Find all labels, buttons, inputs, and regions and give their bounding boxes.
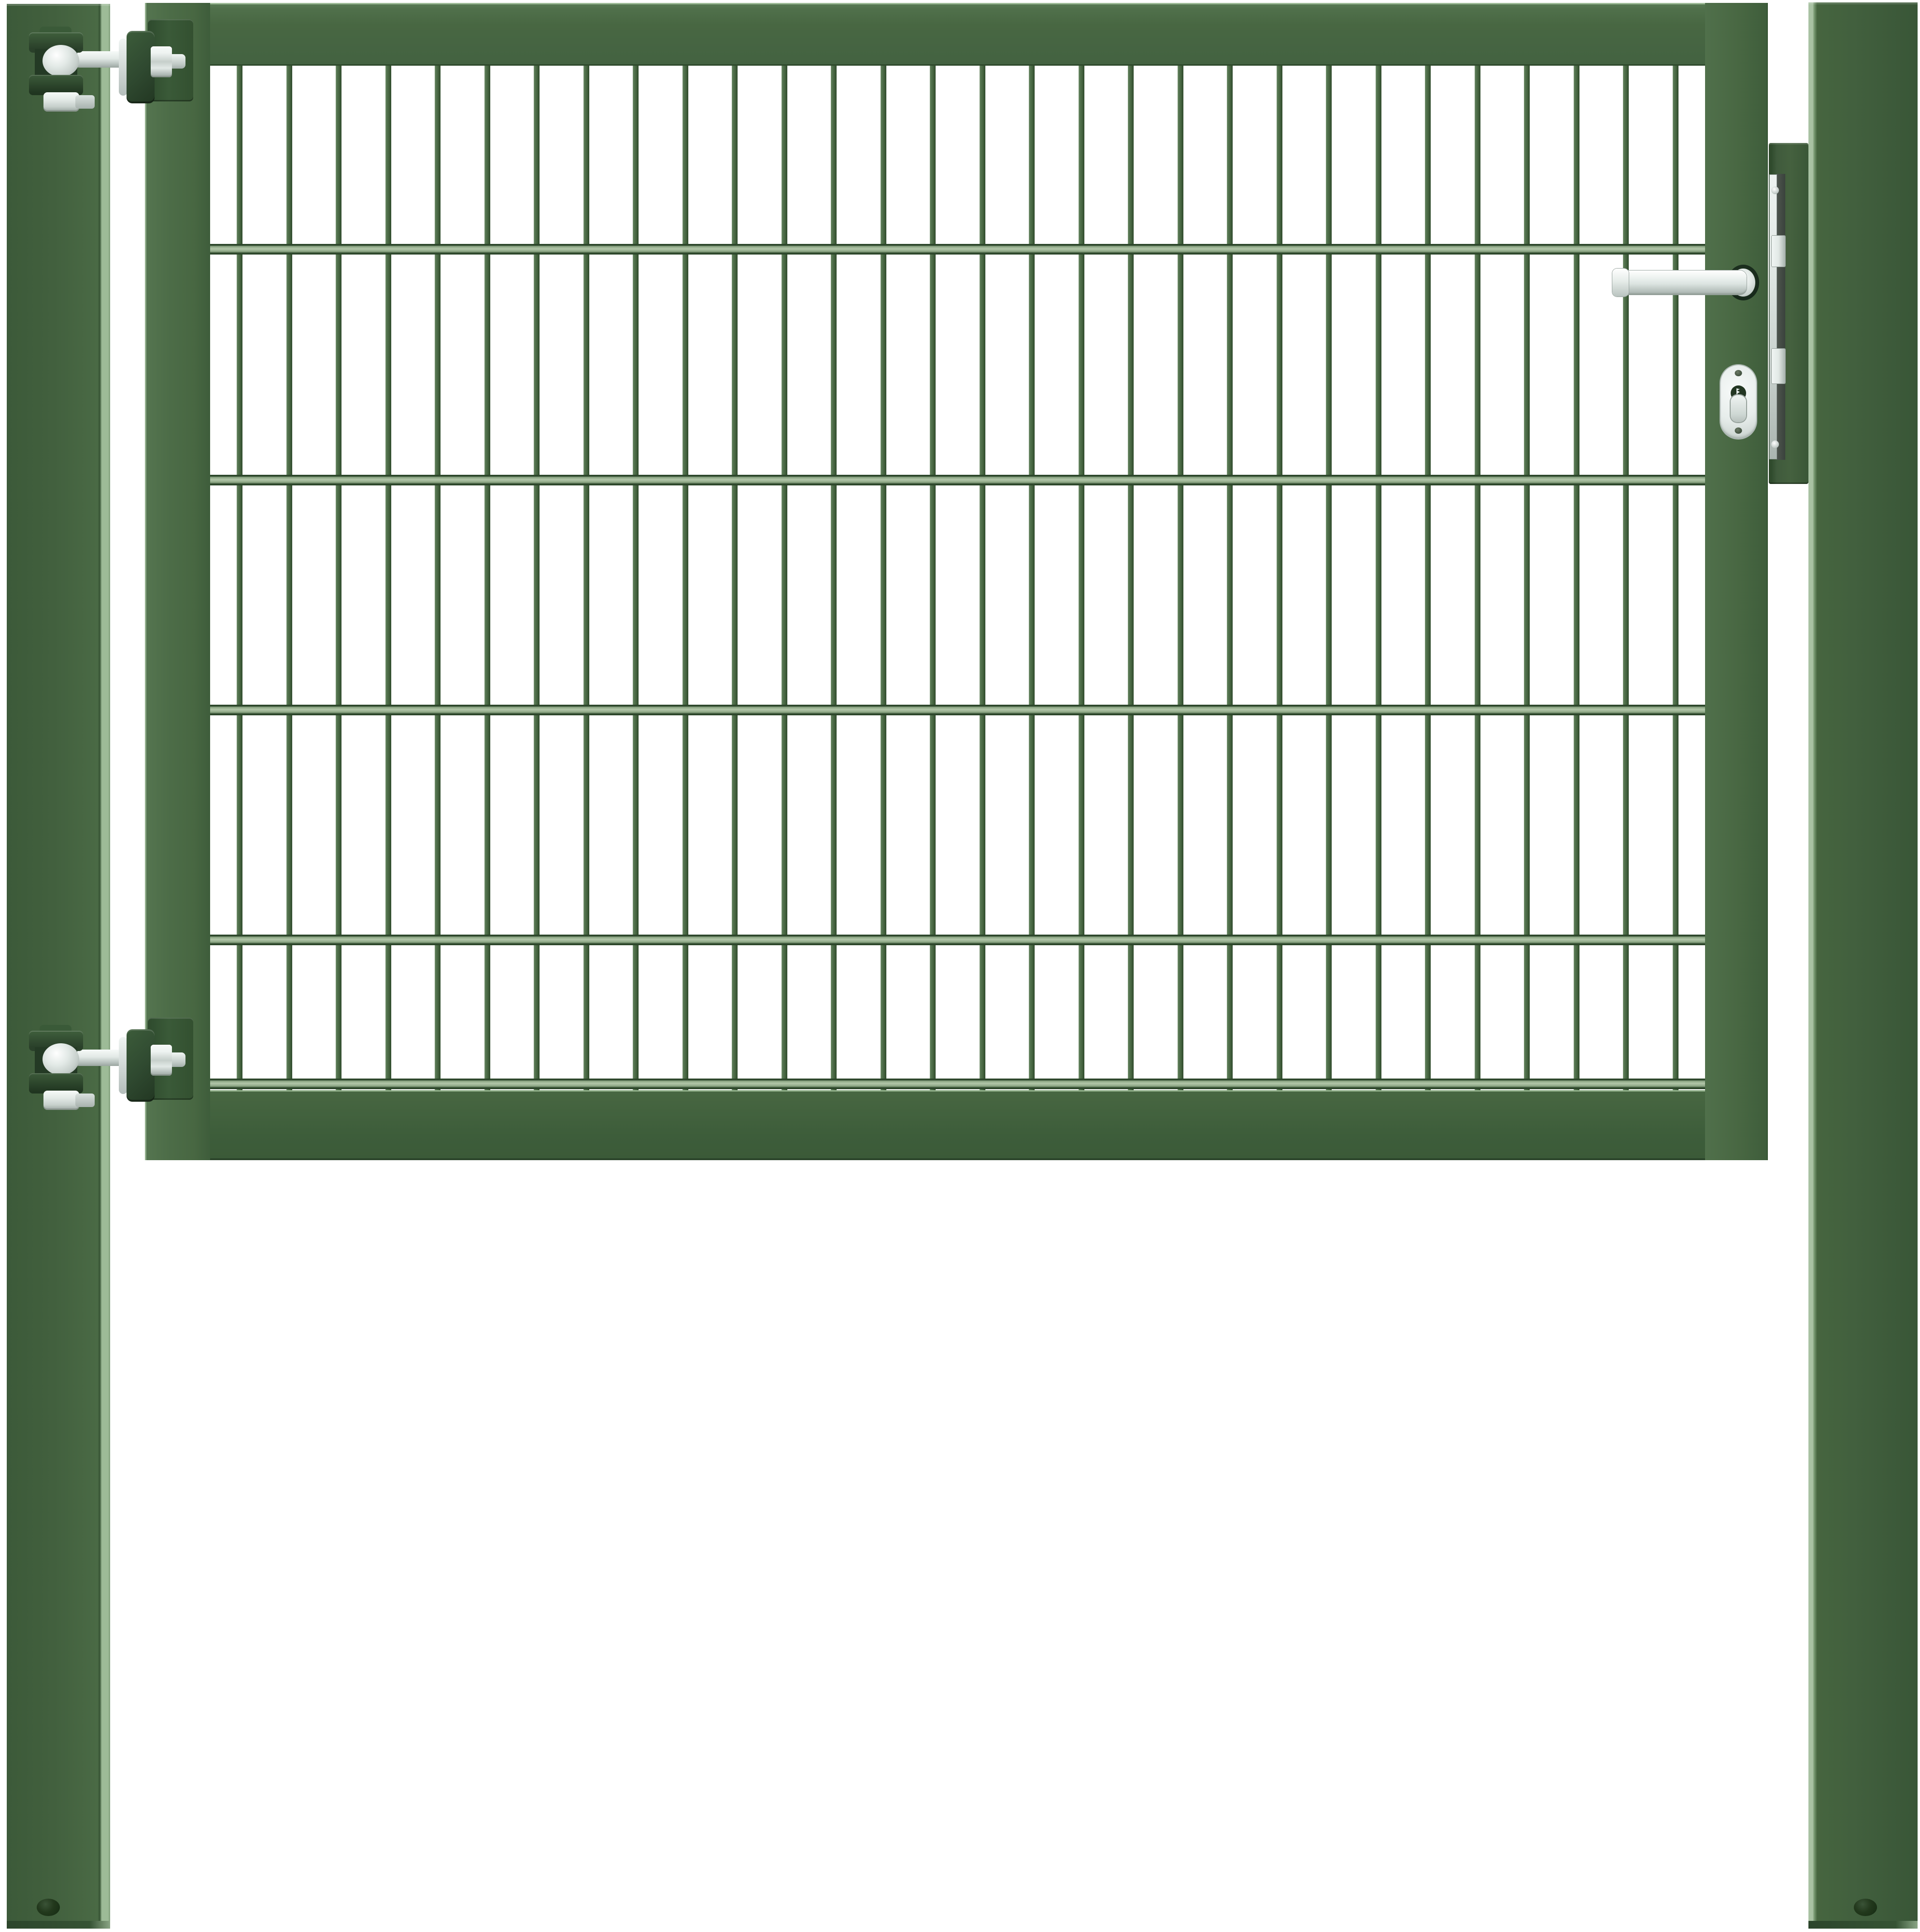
gate-stile-right	[1705, 3, 1768, 1160]
lever-handle	[1613, 270, 1747, 295]
gate-frame	[145, 3, 1768, 1160]
strike-screw	[1771, 440, 1779, 448]
hinge-ball-joint	[43, 45, 79, 77]
horizontal-double-wire	[208, 705, 1707, 715]
hinge-lower-washer	[75, 95, 95, 109]
right-post	[1808, 2, 1918, 1929]
lock-escutcheon	[1721, 365, 1756, 439]
hinge-ball-joint	[43, 1043, 79, 1075]
escutcheon-screw-top	[1735, 370, 1742, 376]
drain-hole	[37, 1899, 60, 1916]
lock-channel	[1777, 174, 1785, 460]
product-image	[0, 0, 1920, 1932]
horizontal-double-wire	[208, 1079, 1707, 1089]
hinge-lower-washer	[75, 1094, 95, 1107]
hinge-bolt-end	[170, 1052, 185, 1067]
gate-rail-top	[145, 3, 1768, 66]
hinge-lower-nut	[43, 1091, 79, 1110]
strike-plate	[1770, 175, 1777, 459]
hinge-lower-nut	[43, 92, 79, 112]
left-post	[7, 4, 110, 1929]
horizontal-double-wire	[208, 244, 1707, 255]
cylinder-body	[1731, 395, 1746, 422]
gate-rail-bottom	[145, 1090, 1768, 1160]
horizontal-double-wire	[208, 935, 1707, 945]
hinge-hex-nut	[151, 46, 172, 77]
escutcheon-screw-bottom	[1735, 427, 1742, 434]
hinge-hex-nut	[151, 1045, 172, 1076]
dead-bolt	[1772, 349, 1785, 384]
horizontal-double-wire	[208, 475, 1707, 485]
latch-bolt	[1772, 236, 1785, 267]
strike-screw	[1771, 186, 1779, 194]
drain-hole	[1854, 1899, 1877, 1916]
hinge-top	[29, 27, 188, 133]
mesh-panel	[210, 66, 1705, 1090]
mesh-wires	[210, 66, 1705, 1090]
gate-stile-left	[145, 3, 210, 1160]
hinge-bottom	[29, 1025, 188, 1131]
hinge-bolt-end	[170, 54, 185, 69]
